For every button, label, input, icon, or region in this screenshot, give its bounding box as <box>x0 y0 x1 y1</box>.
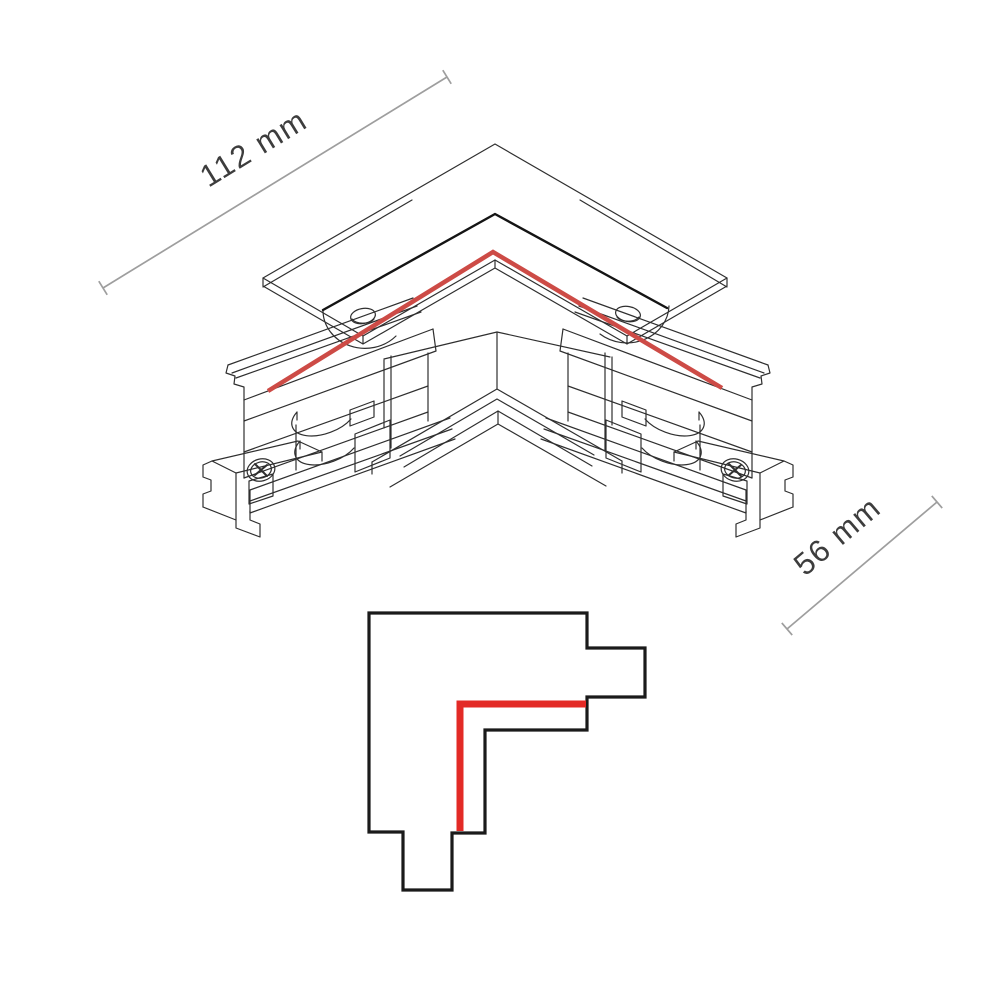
conductor-line-iso <box>268 252 722 391</box>
contact-finger-lower <box>642 441 701 465</box>
body-back-edge-right <box>580 200 727 287</box>
clamp-foot <box>736 507 793 537</box>
contact-finger-lower <box>295 441 354 465</box>
dimension-56: 56 mm <box>782 490 942 635</box>
schematic-outline <box>369 613 645 890</box>
clamp-right-steps <box>784 461 793 507</box>
dimension-tick-start <box>782 623 792 635</box>
dimension-112-line <box>99 70 451 295</box>
isometric-connector-drawing <box>203 144 793 537</box>
top-view-schematic <box>369 613 645 890</box>
clamp-top-face <box>674 441 784 473</box>
dimension-112: 112 mm <box>99 70 451 295</box>
right-mounting-clamp <box>674 441 793 537</box>
dimension-tick-end <box>443 70 451 84</box>
dimension-tick-end <box>932 496 942 508</box>
dimension-tick-start <box>99 281 107 295</box>
dimension-56-label: 56 mm <box>787 490 888 583</box>
coupler-mid-tab <box>622 401 646 426</box>
bar-front-face <box>560 329 752 421</box>
coupler-mid-tab <box>350 401 374 426</box>
technical-drawing-canvas: 112 mm 56 mm <box>0 0 1000 1000</box>
schematic-conductor-line <box>460 704 586 831</box>
corner-body <box>372 332 622 487</box>
clamp-left-steps <box>203 461 212 507</box>
dimension-line <box>103 77 447 288</box>
top-cover-plate <box>263 144 727 348</box>
plate-outline <box>263 144 727 336</box>
base-rail <box>250 418 455 513</box>
drawing-page: 112 mm 56 mm <box>0 0 1000 1000</box>
dimension-112-label: 112 mm <box>194 102 313 194</box>
red-conductor-chevron <box>268 252 722 391</box>
clamp-top-face <box>212 441 322 473</box>
left-mounting-clamp <box>203 441 322 537</box>
bar-front-face <box>244 329 436 421</box>
clamp-foot <box>203 507 260 537</box>
